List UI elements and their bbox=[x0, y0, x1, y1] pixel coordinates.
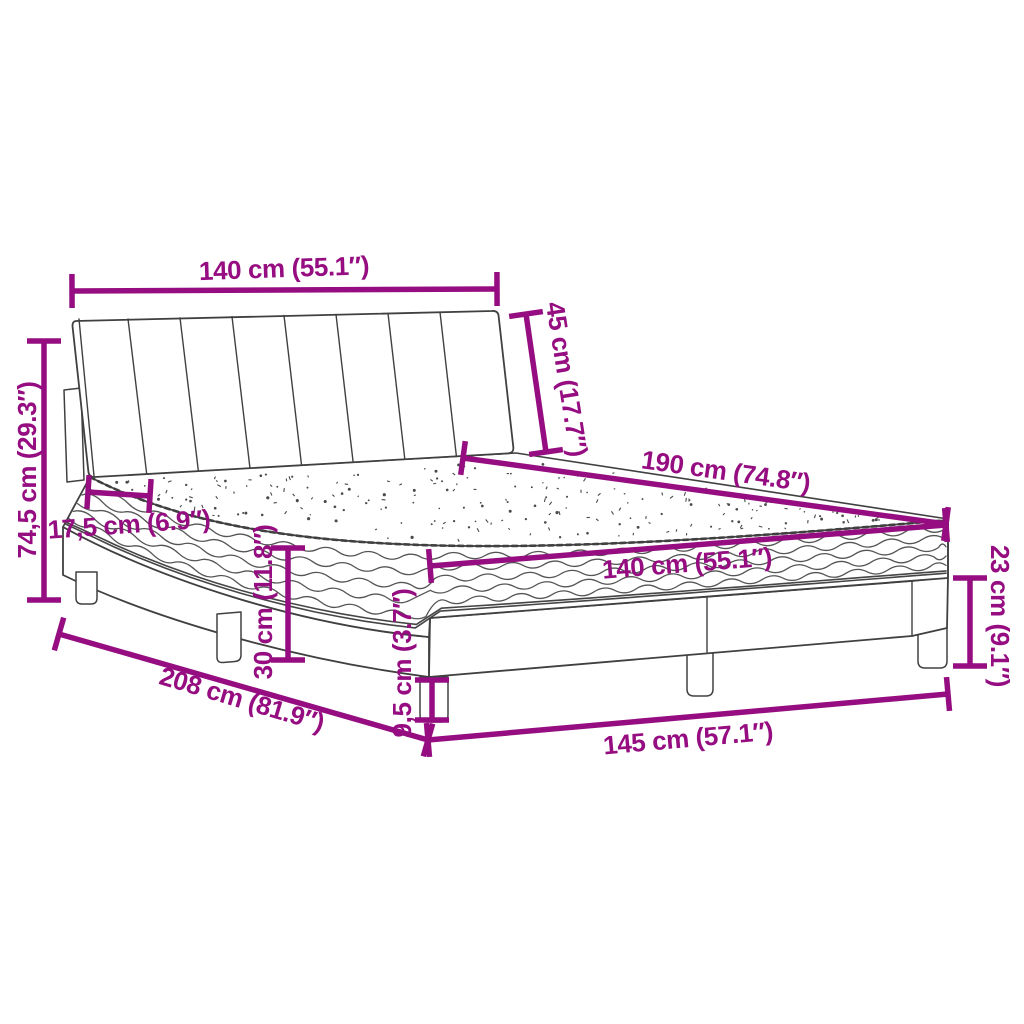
dimension-line bbox=[526, 314, 546, 452]
leg-1 bbox=[76, 572, 97, 604]
dimension-diagram: 140 cm (55.1″) 74,5 cm (29.3″) 45 cm (17… bbox=[0, 0, 1024, 1024]
dimension-cap bbox=[947, 677, 950, 711]
dimension-cap bbox=[429, 549, 432, 583]
leg-2 bbox=[217, 612, 241, 663]
label-headboard-height: 45 cm (17.7″) bbox=[540, 300, 594, 459]
leg-4 bbox=[687, 652, 713, 696]
label-foot-end-height: 23 cm (9.1″) bbox=[985, 545, 1015, 687]
bed-diagram-canvas: 140 cm (55.1″) 74,5 cm (29.3″) 45 cm (17… bbox=[0, 0, 1024, 1024]
dimension-cap bbox=[509, 312, 543, 317]
label-total-height: 74,5 cm (29.3″) bbox=[12, 381, 42, 558]
label-mattress-length: 190 cm (74.8″) bbox=[640, 444, 813, 497]
label-base-height: 30 cm (11.8″) bbox=[248, 525, 278, 680]
dimension-cap bbox=[427, 723, 430, 757]
dimension-cap bbox=[529, 450, 563, 455]
dimension-cap bbox=[87, 475, 89, 509]
dimension-line bbox=[72, 289, 497, 291]
label-headboard-width: 140 cm (55.1″) bbox=[198, 250, 369, 286]
label-leg-height: 9,5 cm (3.7″) bbox=[387, 589, 417, 738]
label-total-length: 208 cm (81.9″) bbox=[156, 661, 328, 738]
dimension-cap bbox=[945, 508, 948, 542]
dim-foot-end-height bbox=[953, 578, 987, 666]
